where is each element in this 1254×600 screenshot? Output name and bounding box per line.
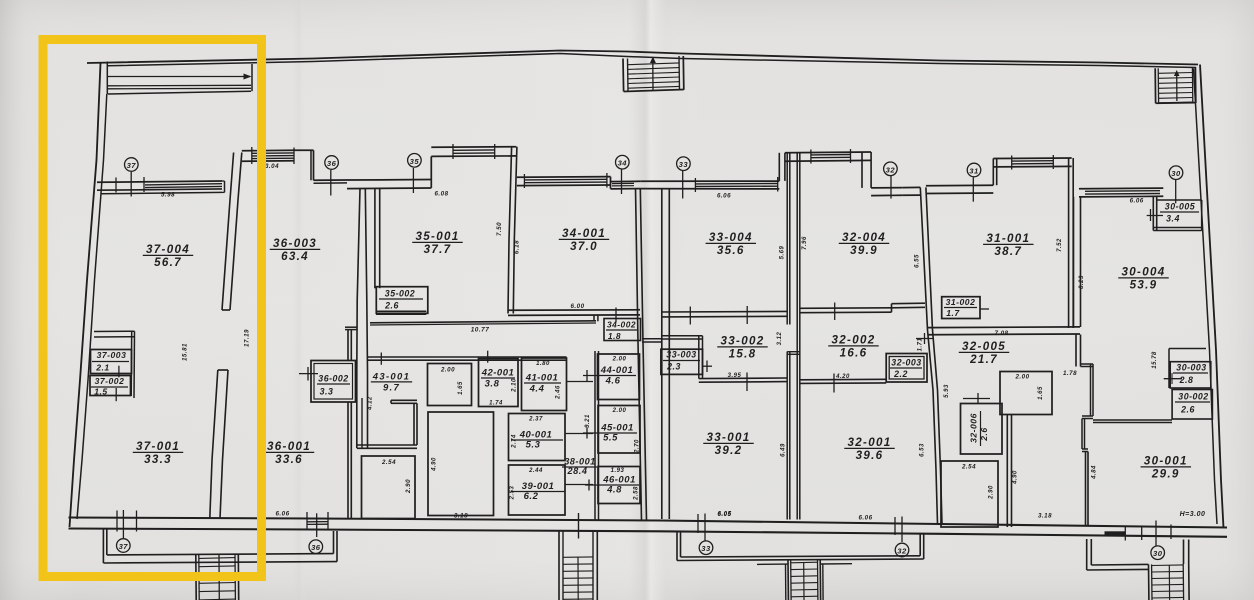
svg-text:1.93: 1.93	[611, 468, 625, 474]
svg-text:33: 33	[679, 160, 689, 169]
svg-text:1.7: 1.7	[946, 308, 960, 318]
svg-text:7.08: 7.08	[994, 330, 1008, 337]
svg-text:37.0: 37.0	[570, 240, 598, 253]
svg-text:33-002: 33-002	[721, 335, 765, 348]
svg-text:4.20: 4.20	[835, 374, 850, 380]
svg-text:56.7: 56.7	[154, 256, 182, 269]
svg-text:37-001: 37-001	[136, 440, 180, 453]
svg-text:32: 32	[897, 547, 907, 556]
svg-text:3.12: 3.12	[777, 332, 783, 346]
svg-text:33.3: 33.3	[144, 453, 172, 466]
svg-text:36-002: 36-002	[318, 374, 348, 384]
svg-text:2.46: 2.46	[556, 385, 562, 400]
svg-text:32: 32	[886, 165, 896, 174]
svg-text:39.2: 39.2	[715, 444, 743, 457]
svg-text:6.06: 6.06	[275, 511, 289, 518]
svg-text:37: 37	[119, 542, 129, 551]
svg-text:6.55: 6.55	[915, 254, 921, 268]
svg-text:42-001: 42-001	[481, 368, 515, 379]
svg-text:15.78: 15.78	[1152, 351, 1158, 369]
svg-text:30-005: 30-005	[1165, 202, 1195, 212]
svg-text:39.6: 39.6	[856, 449, 884, 462]
svg-text:32-003: 32-003	[891, 358, 921, 368]
svg-text:63.4: 63.4	[281, 250, 309, 263]
svg-text:1.78: 1.78	[1063, 370, 1077, 377]
svg-text:21.7: 21.7	[969, 353, 998, 366]
svg-text:4.12: 4.12	[368, 396, 374, 411]
svg-text:29.9: 29.9	[1151, 468, 1180, 481]
svg-text:32-006: 32-006	[969, 413, 979, 443]
svg-text:34-002: 34-002	[607, 319, 636, 329]
svg-text:5.98: 5.98	[161, 192, 175, 199]
svg-text:6.18: 6.18	[514, 240, 521, 254]
svg-text:3.3: 3.3	[320, 387, 334, 397]
svg-text:39.9: 39.9	[850, 244, 878, 257]
svg-text:37: 37	[127, 161, 137, 170]
svg-text:36-001: 36-001	[267, 440, 311, 453]
svg-text:3.95: 3.95	[728, 373, 742, 379]
svg-text:31-001: 31-001	[986, 232, 1030, 245]
svg-text:35-001: 35-001	[416, 230, 460, 243]
svg-text:4.90: 4.90	[1013, 470, 1019, 485]
svg-text:2.70: 2.70	[635, 439, 641, 454]
svg-text:37-003: 37-003	[97, 350, 127, 360]
svg-text:2.54: 2.54	[381, 459, 396, 466]
svg-text:6.06: 6.06	[858, 515, 872, 522]
svg-text:32-002: 32-002	[832, 334, 876, 347]
svg-text:35: 35	[410, 157, 420, 166]
svg-text:3.04: 3.04	[265, 163, 279, 170]
svg-text:2.6: 2.6	[1180, 405, 1195, 415]
svg-text:37-004: 37-004	[146, 243, 190, 256]
svg-text:1.8: 1.8	[608, 331, 621, 341]
svg-text:2.00: 2.00	[612, 357, 627, 363]
svg-text:7.96: 7.96	[802, 236, 808, 250]
svg-text:1.74: 1.74	[489, 401, 503, 407]
svg-text:2.00: 2.00	[612, 408, 627, 414]
svg-text:33-003: 33-003	[666, 350, 696, 360]
svg-text:6.00: 6.00	[570, 303, 584, 310]
svg-text:1.71: 1.71	[918, 338, 924, 352]
svg-text:5.3: 5.3	[526, 440, 541, 451]
svg-text:36-003: 36-003	[273, 237, 317, 250]
svg-text:2.6: 2.6	[384, 301, 399, 311]
svg-text:1.5: 1.5	[94, 387, 107, 397]
svg-text:34: 34	[618, 159, 628, 168]
svg-text:4.4: 4.4	[529, 384, 545, 395]
svg-text:33.6: 33.6	[275, 453, 303, 466]
svg-text:30: 30	[1171, 169, 1181, 178]
svg-text:36: 36	[327, 159, 337, 168]
svg-text:53.9: 53.9	[1130, 279, 1158, 292]
svg-text:30-001: 30-001	[1144, 455, 1188, 468]
svg-text:17.19: 17.19	[244, 329, 251, 347]
svg-text:30-003: 30-003	[1176, 363, 1206, 373]
svg-text:2.37: 2.37	[528, 417, 543, 423]
svg-text:4.90: 4.90	[432, 457, 438, 472]
svg-text:28.4: 28.4	[567, 466, 588, 476]
svg-text:6.05: 6.05	[717, 511, 731, 518]
svg-text:2.53: 2.53	[510, 486, 516, 501]
svg-text:32-005: 32-005	[962, 340, 1006, 353]
svg-text:2.58: 2.58	[634, 486, 640, 501]
svg-text:9.21: 9.21	[585, 414, 591, 428]
svg-text:1.65: 1.65	[1038, 386, 1044, 400]
svg-text:37-002: 37-002	[95, 376, 125, 386]
svg-text:2.00: 2.00	[1014, 374, 1029, 381]
svg-text:32-001: 32-001	[848, 436, 892, 449]
svg-text:38-001: 38-001	[564, 457, 596, 467]
svg-text:30-002: 30-002	[1178, 392, 1208, 402]
svg-text:3.4: 3.4	[1166, 214, 1180, 224]
svg-text:35-002: 35-002	[385, 288, 415, 298]
svg-text:2.10: 2.10	[512, 378, 518, 393]
svg-text:2.44: 2.44	[528, 468, 543, 474]
svg-text:6.08: 6.08	[434, 191, 448, 198]
svg-text:44-001: 44-001	[600, 365, 634, 376]
svg-text:6.06: 6.06	[1130, 198, 1144, 205]
svg-text:37.7: 37.7	[424, 243, 452, 256]
svg-text:2.1: 2.1	[95, 363, 109, 373]
svg-text:7.52: 7.52	[1057, 238, 1063, 252]
svg-text:15.8: 15.8	[729, 348, 757, 361]
svg-text:4.84: 4.84	[1092, 465, 1098, 480]
svg-text:4.6: 4.6	[605, 376, 621, 387]
svg-text:16.6: 16.6	[840, 347, 868, 360]
svg-text:2.54: 2.54	[961, 464, 976, 471]
svg-text:4.8: 4.8	[606, 485, 622, 496]
svg-text:33-001: 33-001	[707, 431, 751, 444]
svg-text:33: 33	[701, 544, 711, 553]
svg-text:15.81: 15.81	[182, 343, 189, 361]
svg-text:2.8: 2.8	[1179, 375, 1194, 385]
svg-text:34-001: 34-001	[562, 227, 606, 240]
svg-text:5.93: 5.93	[944, 384, 950, 398]
svg-text:H=3.00: H=3.00	[1180, 511, 1206, 518]
svg-text:6.49: 6.49	[781, 443, 787, 457]
svg-text:2.74: 2.74	[512, 434, 518, 449]
svg-text:5.5: 5.5	[603, 433, 618, 444]
svg-text:6.06: 6.06	[717, 193, 731, 200]
svg-text:6.2: 6.2	[524, 491, 539, 502]
svg-text:30: 30	[1153, 549, 1163, 558]
svg-text:5.69: 5.69	[780, 246, 786, 260]
svg-text:35.6: 35.6	[717, 244, 745, 257]
svg-text:1.80: 1.80	[536, 361, 550, 367]
svg-text:2.3: 2.3	[666, 362, 681, 372]
svg-text:2.00: 2.00	[440, 367, 455, 374]
svg-text:2.90: 2.90	[405, 479, 412, 494]
svg-text:41-001: 41-001	[525, 373, 559, 384]
svg-text:10.77: 10.77	[471, 327, 490, 334]
svg-text:3.18: 3.18	[1038, 513, 1052, 520]
svg-text:38.7: 38.7	[994, 245, 1022, 258]
svg-text:30-004: 30-004	[1122, 266, 1166, 279]
svg-text:9.7: 9.7	[383, 383, 400, 394]
svg-text:36: 36	[311, 543, 321, 552]
svg-text:31-002: 31-002	[946, 297, 976, 307]
svg-text:33-004: 33-004	[709, 231, 753, 244]
svg-text:43-001: 43-001	[372, 372, 410, 383]
svg-text:6.53: 6.53	[920, 443, 926, 457]
svg-text:2.2: 2.2	[893, 369, 908, 379]
svg-text:3.8: 3.8	[485, 379, 500, 390]
svg-text:32-004: 32-004	[842, 231, 886, 244]
svg-text:2.90: 2.90	[989, 485, 995, 500]
svg-text:7.50: 7.50	[496, 222, 503, 236]
svg-text:31: 31	[969, 167, 978, 176]
svg-text:1.65: 1.65	[458, 381, 464, 395]
